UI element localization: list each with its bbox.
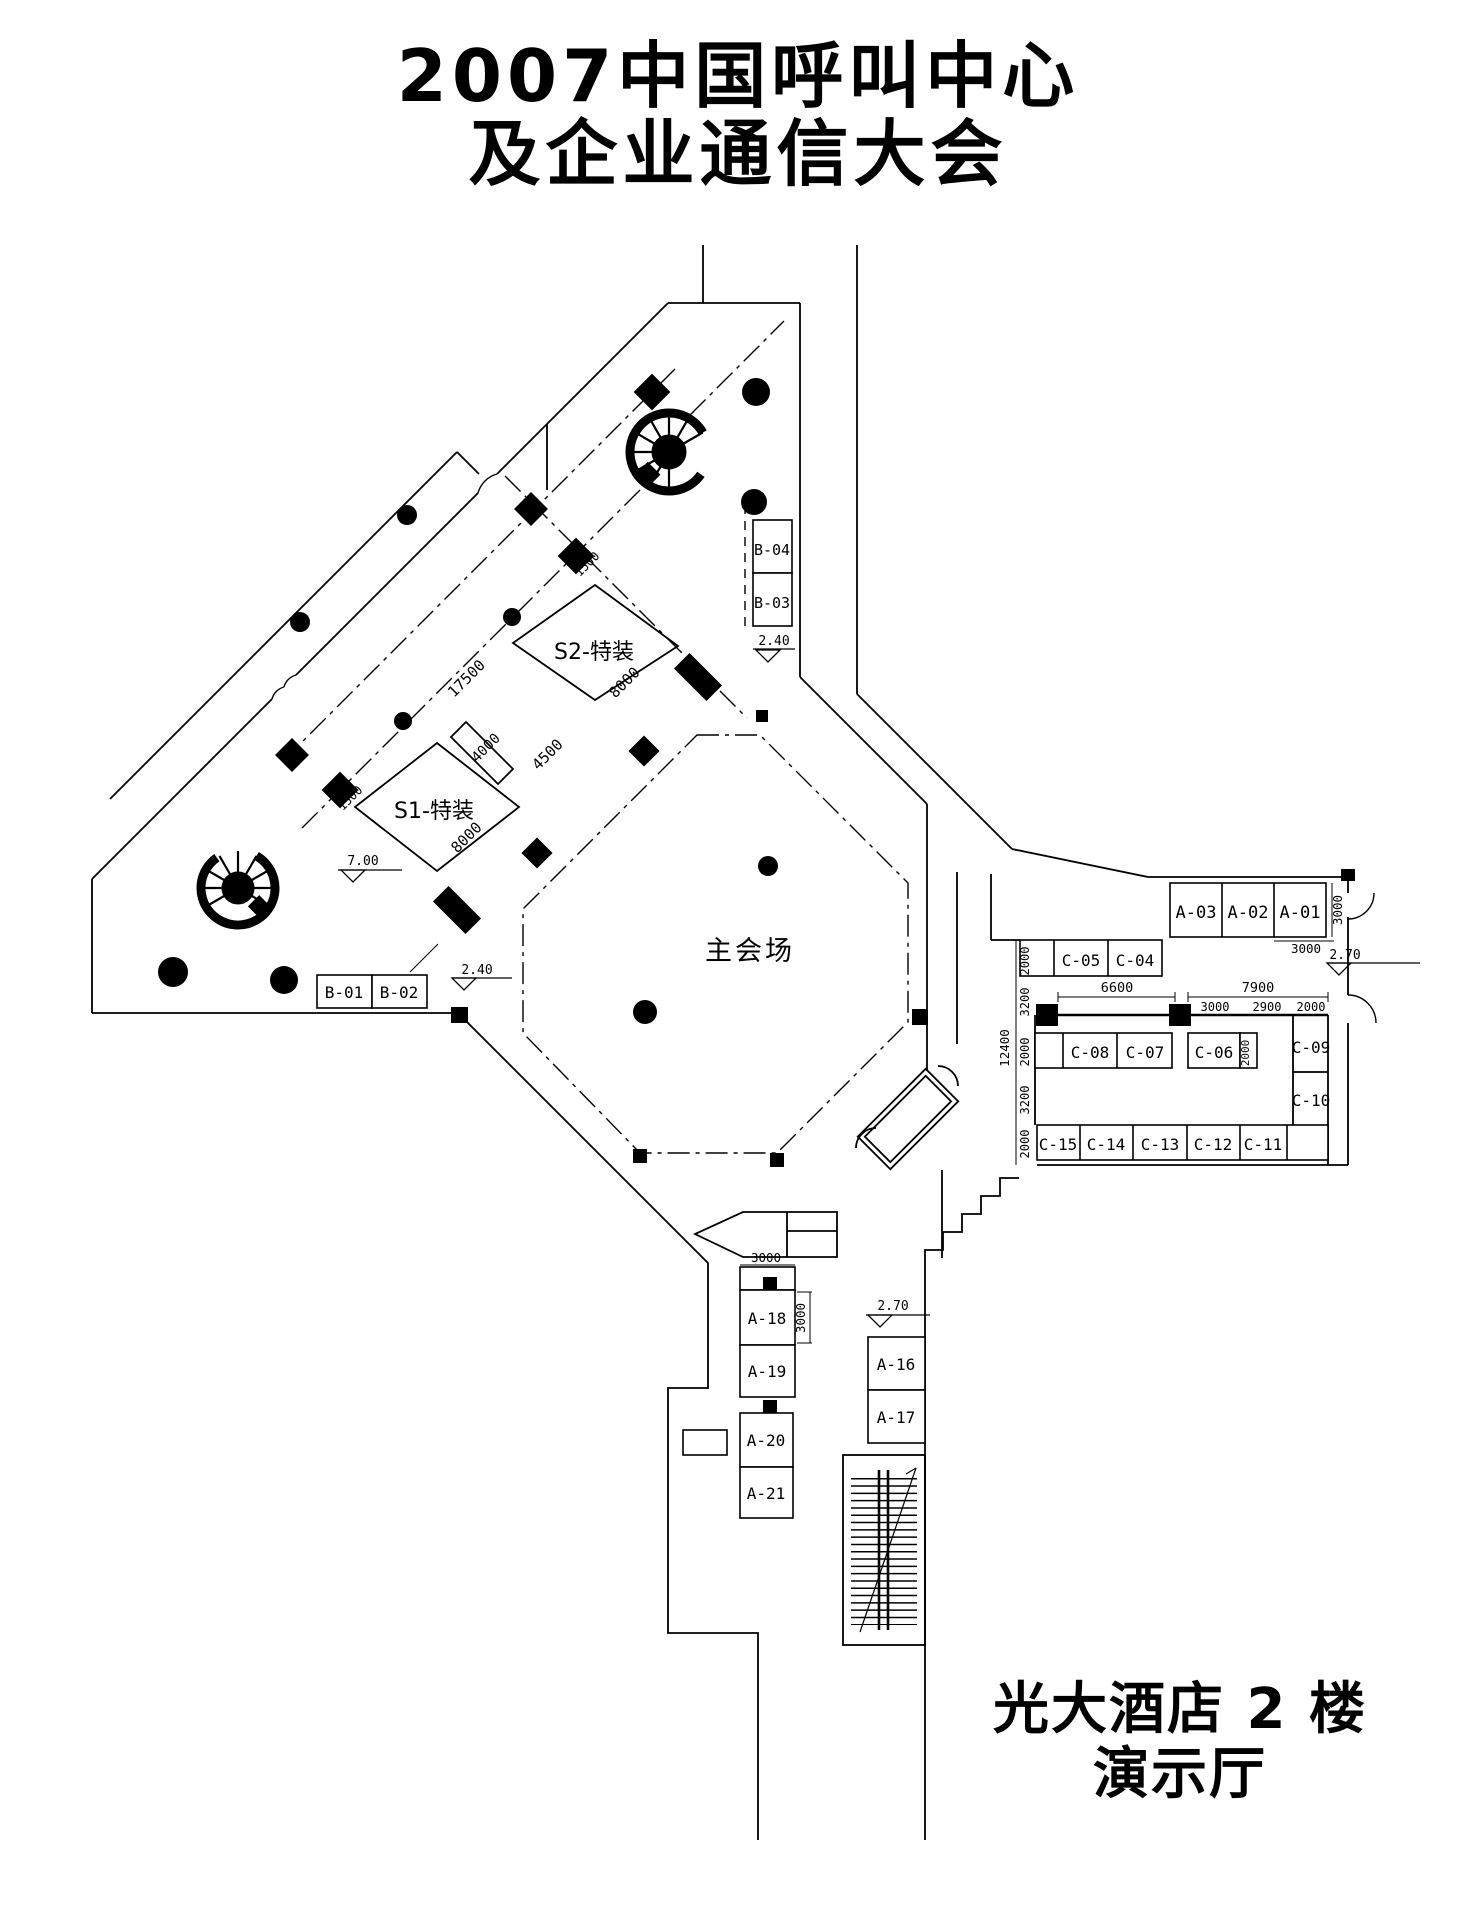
location-line-2: 演示厅 <box>950 1743 1410 1808</box>
door-arcs <box>272 474 1376 1023</box>
title-line-1: 2007中国呼叫中心 <box>0 38 1476 116</box>
booth-label-b04: B-04 <box>754 541 790 559</box>
axis-lines <box>283 321 908 1153</box>
booth-label-a03: A-03 <box>1176 903 1217 923</box>
door-icon <box>1348 995 1376 1023</box>
door-icon <box>272 687 284 699</box>
main-hall-label: 主会场 <box>705 936 795 967</box>
dim-3000-a18-h: 3000 <box>793 1303 808 1333</box>
booth-label-a01: A-01 <box>1280 903 1321 923</box>
dim-4000: 4000 <box>469 731 504 766</box>
elevation-label-s1: 7.00 <box>347 854 378 869</box>
dim-2000-c: 2000 <box>1297 1000 1326 1014</box>
dim-c-left-3200b: 3200 <box>1018 1086 1032 1115</box>
booth-label-c14: C-14 <box>1087 1135 1126 1154</box>
dim-3000-c: 3000 <box>1201 1000 1230 1014</box>
dim-2000-c06: 2000 <box>1239 1040 1252 1067</box>
booth-label-c15: C-15 <box>1039 1135 1078 1154</box>
dim-3000-a01-h: 3000 <box>1330 895 1345 925</box>
elevation-label-a16: 2.70 <box>877 1299 908 1314</box>
elevation-marker-a16 <box>866 1315 930 1327</box>
booth-label-c10: C-10 <box>1292 1091 1331 1110</box>
floorplan-page: 2007中国呼叫中心 及企业通信大会 <box>0 0 1476 1912</box>
door-icon <box>1348 893 1374 919</box>
title-line-2: 及企业通信大会 <box>0 116 1476 194</box>
escalator-icon <box>843 1455 925 1645</box>
booth-label-c05: C-05 <box>1062 951 1101 970</box>
dimension-lines <box>410 883 1334 1343</box>
booth-label-c11: C-11 <box>1244 1135 1283 1154</box>
booth-label-a16: A-16 <box>877 1355 916 1374</box>
booth-label-c08: C-08 <box>1071 1043 1110 1062</box>
dim-c-left-2000c: 2000 <box>1018 1130 1032 1159</box>
elevation-marker-b02 <box>452 978 512 990</box>
door-icon <box>284 675 296 687</box>
dim-4500: 4500 <box>528 735 566 773</box>
elevation-marker-right <box>1327 963 1420 975</box>
floorplan-drawing: 主会场 S2-特装 S1-特装 B-04 B-03 B-01 B-02 A-03… <box>0 0 1476 1912</box>
booth-label-b01: B-01 <box>325 983 364 1002</box>
door-hinges <box>1341 869 1355 881</box>
elevation-label-right: 2.70 <box>1329 948 1360 963</box>
dim-6600: 6600 <box>1101 980 1134 996</box>
s2-area-label: S2-特装 <box>554 640 634 665</box>
dim-12400: 12400 <box>997 1029 1012 1067</box>
dim-8000-s2: 8000 <box>605 663 643 701</box>
booth-label-b03: B-03 <box>754 594 790 612</box>
dim-3000-a18-w: 3000 <box>751 1250 781 1265</box>
booth-label-c09: C-09 <box>1292 1038 1331 1057</box>
empty-box <box>683 1430 727 1455</box>
elevation-label-b03: 2.40 <box>758 634 789 649</box>
booth-label-c06: C-06 <box>1195 1043 1234 1062</box>
location-caption: 光大酒店 2 楼 演示厅 <box>950 1678 1410 1808</box>
booth-label-b02: B-02 <box>380 983 419 1002</box>
dim-7900: 7900 <box>1242 980 1275 996</box>
booth-label-a18: A-18 <box>748 1309 787 1328</box>
elevation-marker-s1 <box>338 870 402 882</box>
booth-label-a17: A-17 <box>877 1408 916 1427</box>
booth-label-a19: A-19 <box>748 1362 787 1381</box>
dim-c-left-2000b: 2000 <box>1018 1038 1032 1067</box>
door-icon <box>478 474 497 493</box>
page-title: 2007中国呼叫中心 及企业通信大会 <box>0 38 1476 194</box>
rotated-room <box>856 1066 958 1169</box>
location-line-1: 光大酒店 2 楼 <box>950 1678 1410 1743</box>
booth-label-a20: A-20 <box>747 1431 786 1450</box>
booth-label-c07: C-07 <box>1126 1043 1165 1062</box>
dim-3000-a01-w: 3000 <box>1291 941 1321 956</box>
dim-2900-c: 2900 <box>1253 1000 1282 1014</box>
elevation-label-b02: 2.40 <box>461 963 492 978</box>
booth-label-a21: A-21 <box>747 1484 786 1503</box>
booth-label-c04: C-04 <box>1116 951 1155 970</box>
elevation-marker-b03 <box>753 649 795 662</box>
dim-c-left-3200a: 3200 <box>1018 988 1032 1017</box>
booth-label-c12: C-12 <box>1194 1135 1233 1154</box>
s1-area-label: S1-特装 <box>394 799 474 824</box>
booth-label-c13: C-13 <box>1141 1135 1180 1154</box>
dim-c-left-2000a: 2000 <box>1018 947 1032 976</box>
booth-label-a02: A-02 <box>1228 903 1269 923</box>
